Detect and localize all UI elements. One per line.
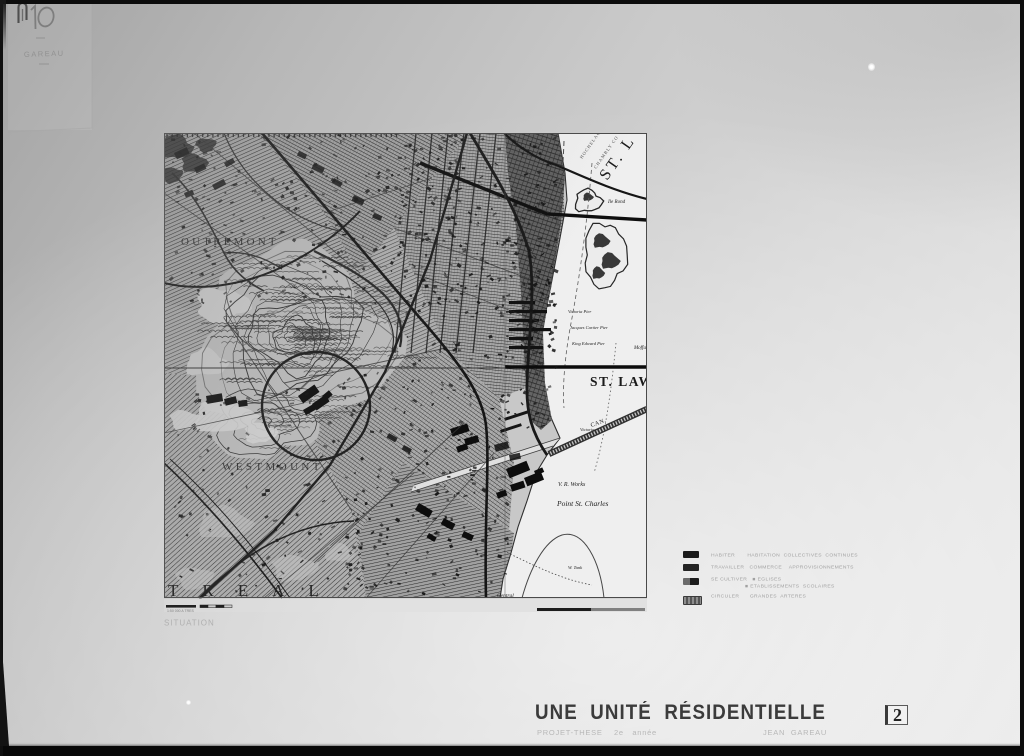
svg-text:GAREAU: GAREAU: [24, 49, 65, 59]
